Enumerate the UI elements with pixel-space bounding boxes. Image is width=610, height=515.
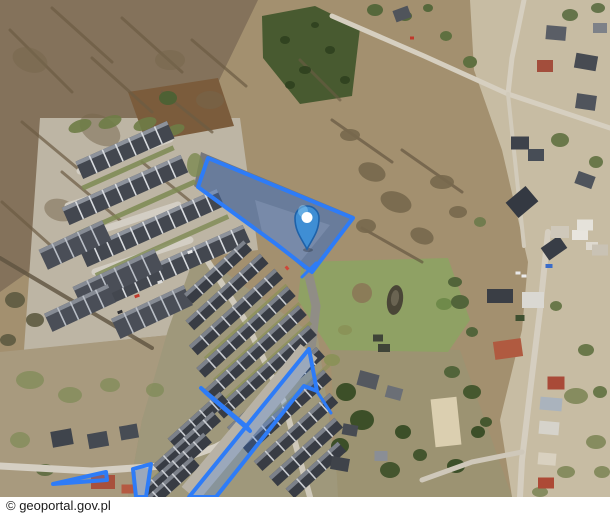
building	[551, 226, 569, 238]
building	[375, 451, 388, 461]
map-viewport[interactable]: © geoportal.gov.pl	[0, 0, 610, 515]
building	[572, 230, 588, 240]
attribution-bar: © geoportal.gov.pl	[0, 497, 610, 515]
building	[528, 149, 544, 161]
building	[593, 23, 607, 33]
building	[545, 25, 566, 41]
building	[516, 315, 525, 321]
attribution-text: © geoportal.gov.pl	[6, 498, 111, 513]
building	[575, 93, 597, 111]
building	[548, 377, 565, 390]
building	[522, 292, 544, 308]
building	[538, 421, 559, 436]
building	[373, 335, 383, 342]
building	[378, 344, 390, 352]
building	[537, 60, 553, 72]
building	[592, 245, 608, 256]
aerial-imagery[interactable]	[0, 0, 610, 497]
pin-dot	[302, 212, 313, 223]
building	[538, 452, 557, 466]
parcel-wedge[interactable]	[133, 464, 151, 497]
building	[538, 478, 554, 489]
building	[122, 485, 135, 494]
building	[431, 397, 462, 447]
building	[577, 220, 593, 231]
building	[539, 397, 562, 412]
building	[487, 289, 513, 303]
building	[511, 137, 529, 150]
